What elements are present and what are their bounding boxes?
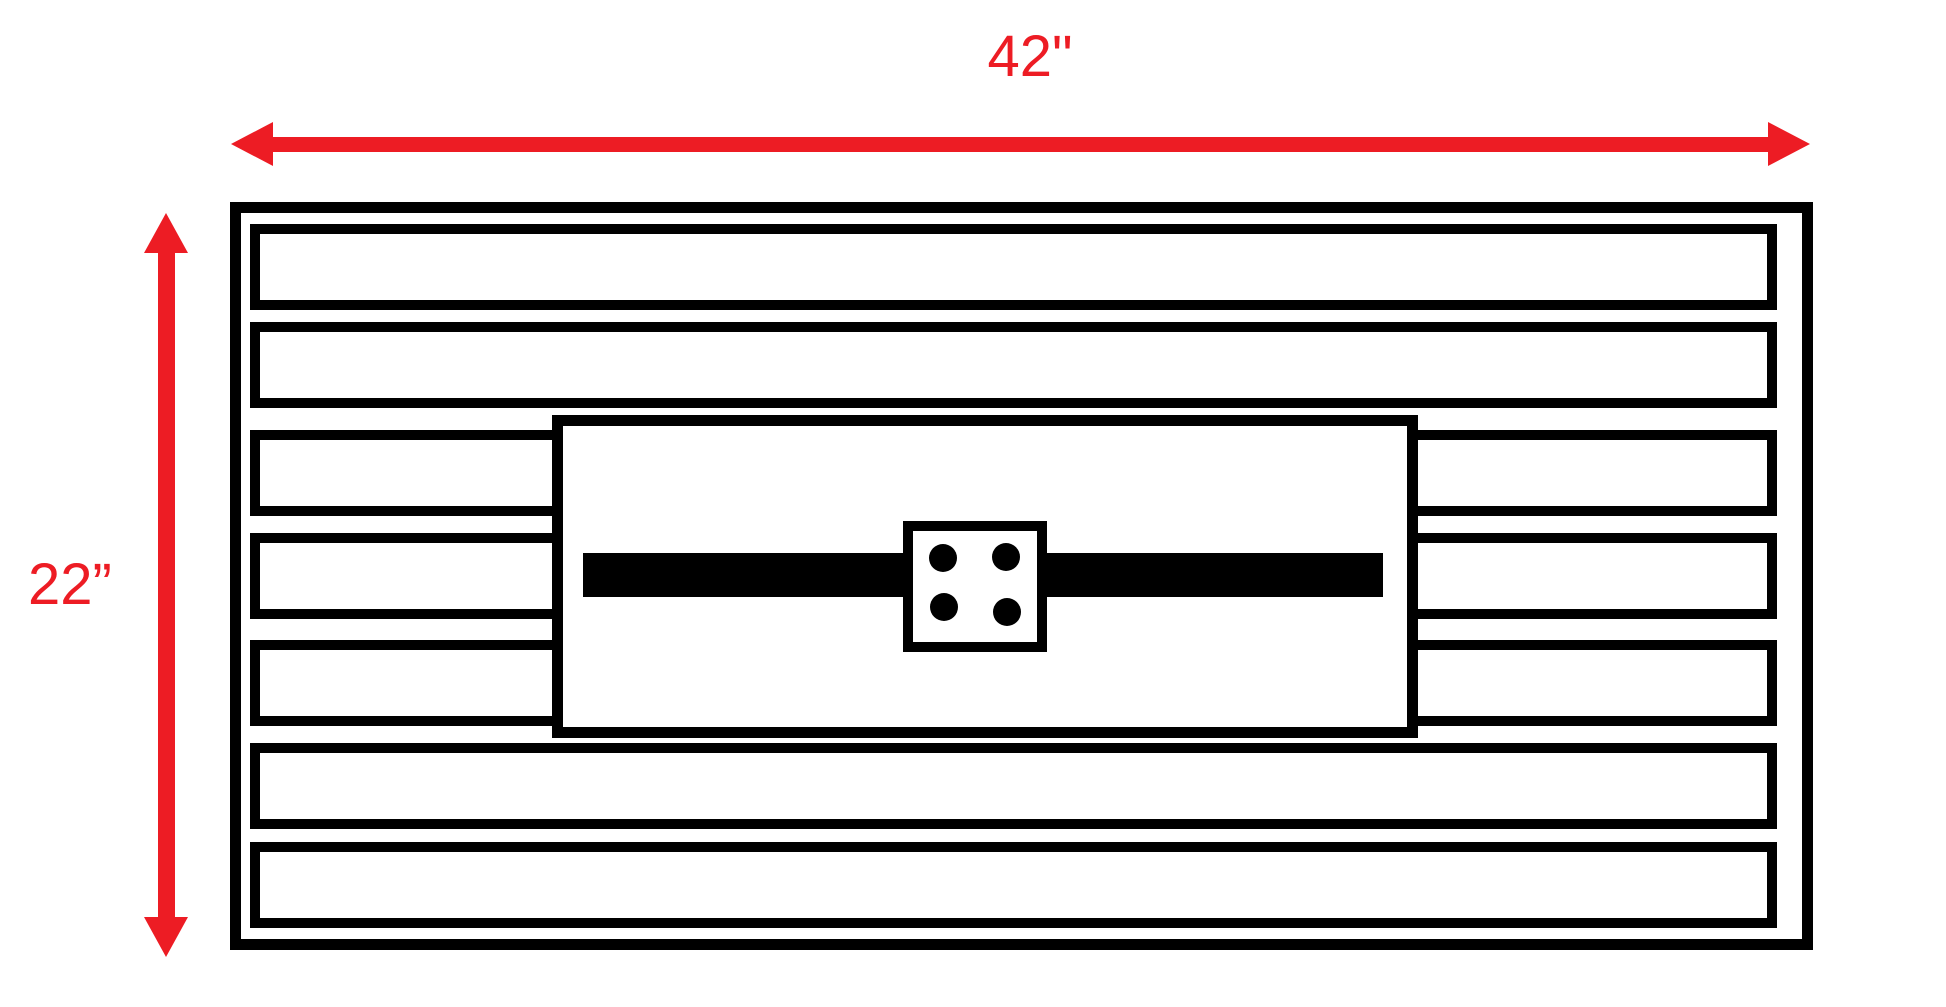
slat-left-segment <box>250 640 565 726</box>
slat-left-segment <box>250 533 565 619</box>
arrowhead-left-icon <box>231 122 273 166</box>
width-dimension-label: 42" <box>860 28 1200 86</box>
slat-right-segment <box>1405 533 1777 619</box>
slat-right-segment <box>1405 430 1777 516</box>
height-arrow-shaft <box>158 248 175 918</box>
bolt-dot <box>929 544 957 572</box>
slat-row <box>250 224 1777 310</box>
bolt-dot <box>930 593 958 621</box>
bolt-plate <box>903 521 1047 652</box>
bolt-dot <box>993 598 1021 626</box>
slat-left-segment <box>250 430 565 516</box>
arrowhead-down-icon <box>144 917 188 957</box>
arrowhead-up-icon <box>144 213 188 253</box>
slat-row <box>250 743 1777 829</box>
slat-right-segment <box>1405 640 1777 726</box>
dimension-diagram: 42" 22” <box>0 0 1946 1007</box>
slat-row <box>250 842 1777 928</box>
arrowhead-right-icon <box>1768 122 1810 166</box>
bolt-dot <box>992 543 1020 571</box>
slat-row <box>250 322 1777 408</box>
width-arrow-shaft <box>268 137 1774 152</box>
height-dimension-label: 22” <box>28 556 112 614</box>
